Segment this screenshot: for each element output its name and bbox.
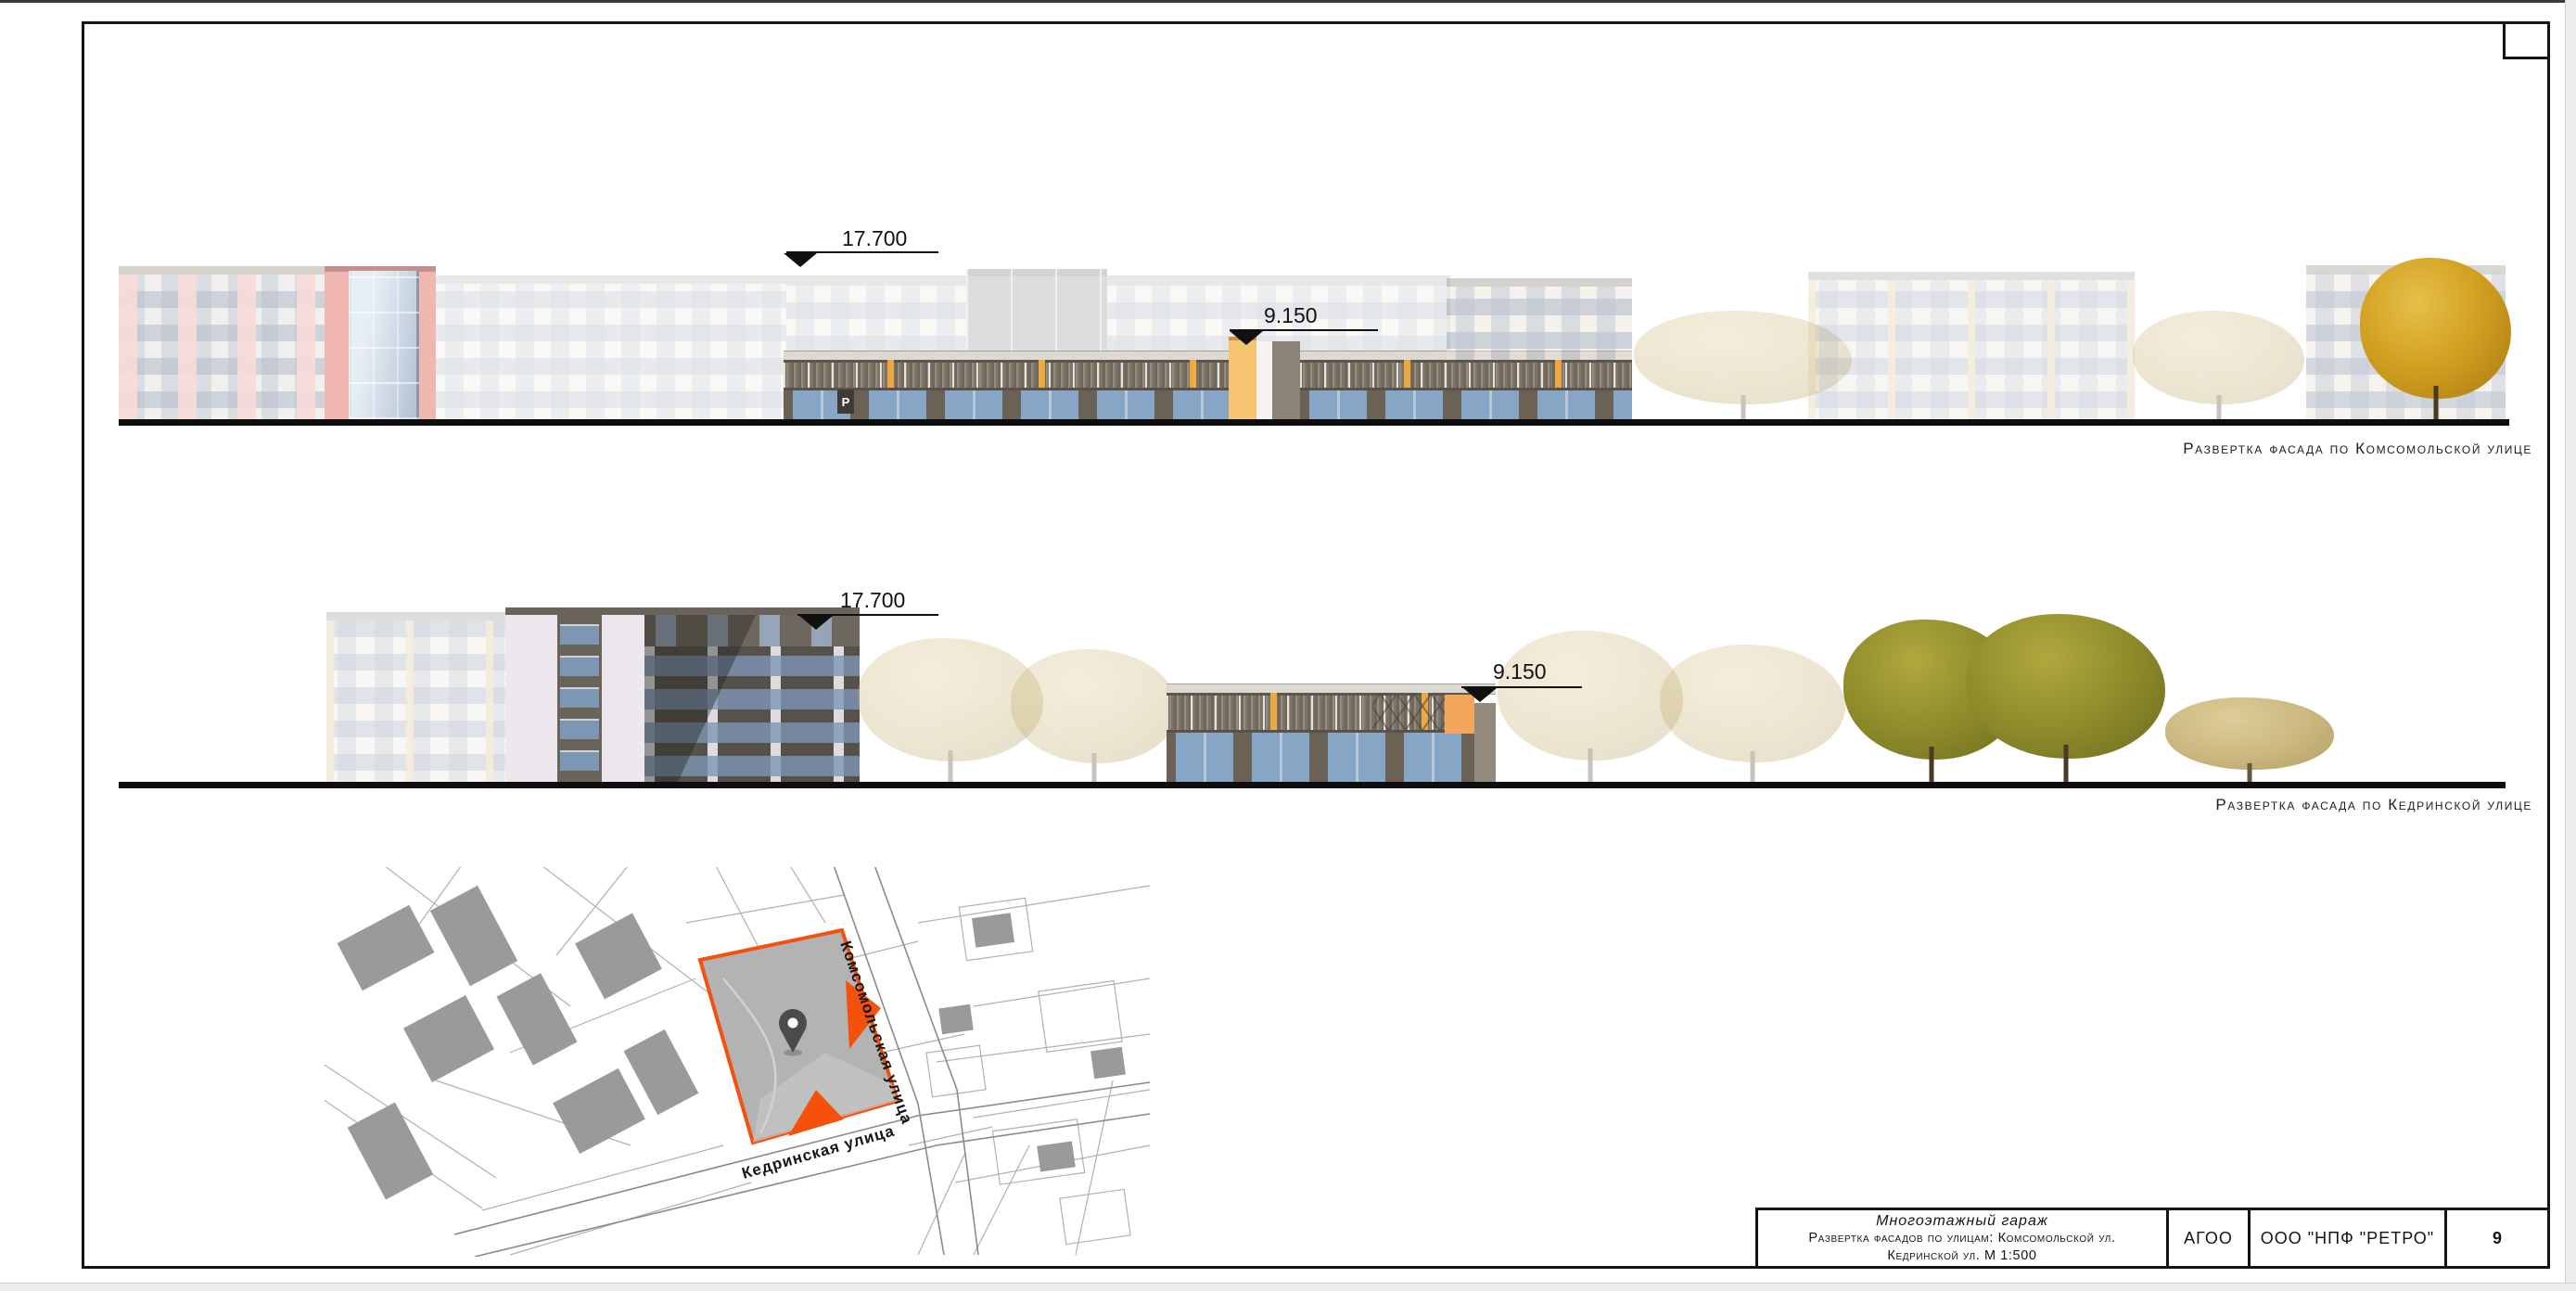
- elevation-mark-value: 17.700: [840, 588, 905, 613]
- sheet-number: 9: [2493, 1229, 2502, 1248]
- glass-tower-facade: [349, 271, 419, 419]
- building-apartment-pink: [119, 266, 325, 419]
- tree-crown: [2360, 258, 2511, 399]
- building-above-garage: [1447, 278, 1632, 360]
- facade-dark-glass: [644, 615, 860, 782]
- title-block-author: АГОО: [2166, 1210, 2248, 1266]
- sheet-title-line2: Кедринской ул. М 1:500: [1887, 1247, 2036, 1264]
- garage-orange-tower: [1229, 337, 1256, 419]
- title-block: Многоэтажный гараж Развертка фасадов по …: [1755, 1208, 2550, 1269]
- trees-faded-6: [1660, 645, 1845, 782]
- building-main-kedrinskaya: [505, 607, 860, 782]
- tree-crown: [2133, 311, 2304, 404]
- site-plan-map: Комсомольская улица Кедринская улица: [325, 867, 1150, 1257]
- trees-faded-4: [1011, 649, 1178, 782]
- organization-name: ООО "НПФ "РЕТРО": [2261, 1229, 2434, 1248]
- tree-crown: [2165, 697, 2334, 770]
- viewer-top-edge: [0, 0, 2576, 3]
- diagonal-shadow: [644, 615, 860, 782]
- garage-slat-band-left: [784, 360, 1231, 388]
- elevation-mark-icon: [1230, 331, 1263, 345]
- author-code: АГОО: [2184, 1229, 2233, 1248]
- parking-sign-letter: P: [842, 395, 850, 409]
- tree-crown: [1660, 645, 1845, 762]
- tree-golden: [2360, 258, 2511, 422]
- building-apartment-right-faded: [1808, 272, 2135, 419]
- tree-crown: [1966, 614, 2165, 759]
- garage-brown-block: [1272, 341, 1300, 419]
- parking-sign: P: [837, 390, 854, 414]
- sheet-title-line1: Развертка фасадов по улицам: Комсомольск…: [1808, 1230, 2115, 1246]
- elevation-mark-icon: [784, 253, 817, 267]
- garage2-glazing: [1167, 730, 1474, 782]
- caption-komsomolskaya: Развертка фасада по Комсомольской улице: [2183, 440, 2532, 458]
- title-block-organization: ООО "НПФ "РЕТРО": [2248, 1210, 2444, 1266]
- drawing-sheet: P 17.700 9.150 Развертка фасада по Комсо…: [0, 0, 2576, 1291]
- garage-white-pier: [1256, 341, 1272, 419]
- garage-storefront-right: [1300, 388, 1632, 419]
- ground-line-kedrinskaya: [119, 782, 2506, 788]
- garage-slat-band-right: [1300, 360, 1632, 388]
- elevation-mark-value: 17.700: [842, 226, 907, 251]
- elevation-mark-value: 9.150: [1264, 303, 1318, 328]
- tree-tan-row: [2165, 697, 2334, 782]
- elevation-mark-icon: [799, 616, 833, 630]
- trees-faded-2: [2133, 311, 2304, 419]
- tree-crown: [1498, 631, 1683, 761]
- ground-line-komsomolskaya: [119, 419, 2509, 426]
- elevation-mark-icon: [1463, 688, 1497, 702]
- trees-faded-5: [1498, 631, 1683, 782]
- project-name: Многоэтажный гараж: [1876, 1212, 2048, 1230]
- building-apartment-faded: [436, 275, 786, 419]
- window-column: [557, 615, 602, 782]
- caption-kedrinskaya: Развертка фасада по Кедринской улице: [2215, 796, 2532, 814]
- tree-crown: [1011, 649, 1178, 763]
- tree-olive-2: [1966, 614, 2165, 782]
- title-block-description: Многоэтажный гараж Развертка фасадов по …: [1758, 1210, 2166, 1266]
- title-block-sheet-number: 9: [2444, 1210, 2547, 1266]
- elevation-mark-value: 9.150: [1493, 659, 1547, 684]
- garage2-end-wall: [1474, 703, 1496, 782]
- viewer-bottom-edge: [0, 1283, 2576, 1291]
- building-faded-left: [326, 612, 512, 782]
- sheet-corner-stamp-box: [2503, 21, 2550, 59]
- building-pink-tower: [325, 266, 436, 419]
- viewer-right-edge: [2565, 0, 2576, 1291]
